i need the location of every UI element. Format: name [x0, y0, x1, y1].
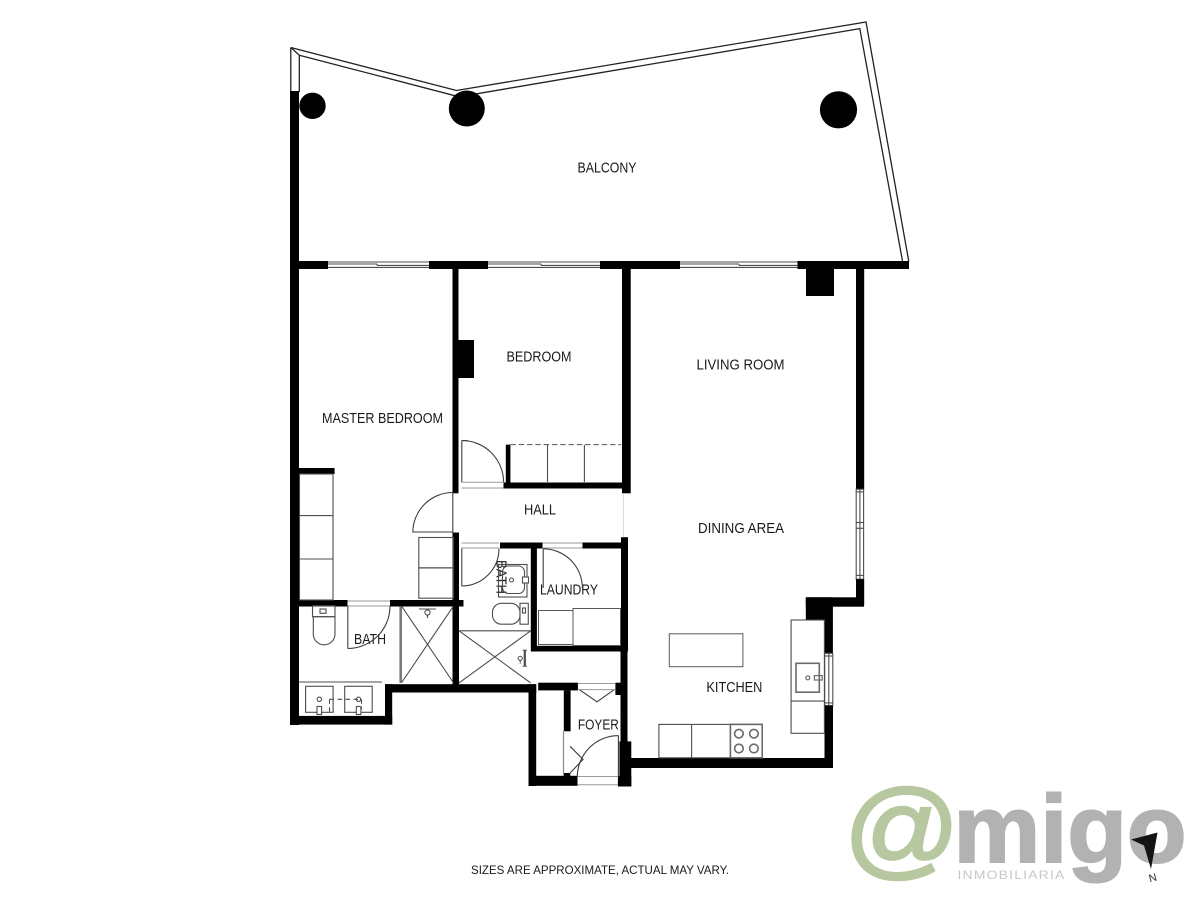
svg-text:KITCHEN: KITCHEN [706, 680, 762, 696]
svg-text:BATH: BATH [354, 632, 386, 648]
svg-text:HALL: HALL [524, 503, 556, 519]
svg-text:BALCONY: BALCONY [578, 161, 637, 177]
svg-text:LAUNDRY: LAUNDRY [540, 583, 598, 599]
svg-text:LIVING ROOM: LIVING ROOM [697, 358, 785, 374]
svg-text:INMOBILIARIA: INMOBILIARIA [958, 868, 1066, 882]
svg-text:BEDROOM: BEDROOM [507, 350, 572, 366]
svg-text:MASTER BEDROOM: MASTER BEDROOM [322, 411, 443, 427]
svg-text:FOYER: FOYER [578, 718, 619, 734]
svg-text:SIZES ARE APPROXIMATE, ACTUAL: SIZES ARE APPROXIMATE, ACTUAL MAY VARY. [471, 863, 729, 877]
svg-text:DINING AREA: DINING AREA [698, 521, 784, 537]
svg-text:@: @ [844, 767, 960, 888]
svg-text:migo: migo [954, 776, 1187, 883]
